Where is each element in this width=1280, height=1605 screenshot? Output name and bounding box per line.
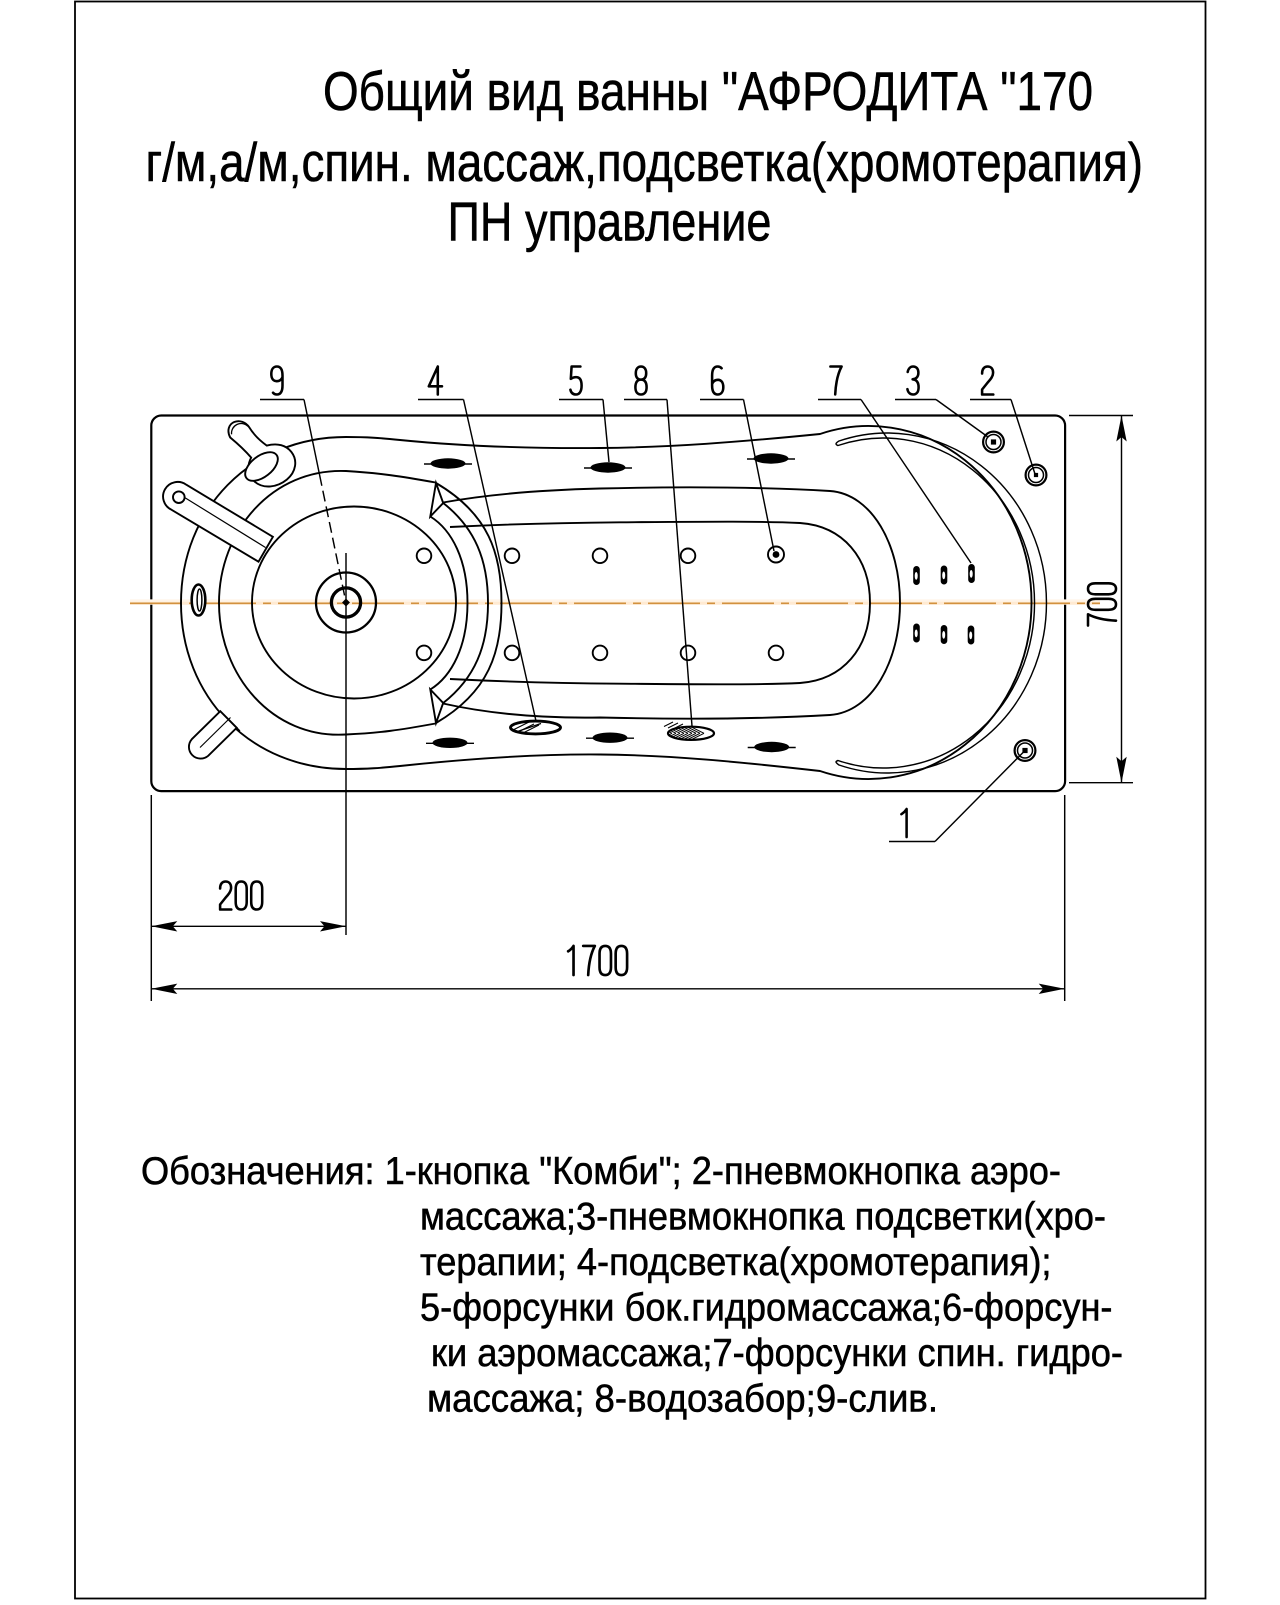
svg-text:ки аэромассажа;7-форсунки спин: ки аэромассажа;7-форсунки спин. гидро- <box>431 1332 1123 1375</box>
svg-text:5-форсунки бок.гидромассажа;6-: 5-форсунки бок.гидромассажа;6-форсун- <box>420 1287 1113 1330</box>
svg-text:Общий вид ванны "АФРОДИТА "170: Общий вид ванны "АФРОДИТА "170 <box>323 60 1093 122</box>
svg-text:массажа; 8-водозабор;9-слив.: массажа; 8-водозабор;9-слив. <box>427 1378 938 1421</box>
svg-text:ПН управление: ПН управление <box>448 191 772 253</box>
svg-text:массажа;3-пневмокнопка подсвет: массажа;3-пневмокнопка подсветки(хро- <box>420 1196 1106 1239</box>
svg-text:Обозначения: 1-кнопка "Комби";: Обозначения: 1-кнопка "Комби"; 2-пневмок… <box>141 1150 1061 1193</box>
svg-text:г/м,а/м,спин. массаж,подсветка: г/м,а/м,спин. массаж,подсветка(хромотера… <box>146 131 1144 193</box>
svg-text:терапии; 4-подсветка(хромотера: терапии; 4-подсветка(хромотерапия); <box>420 1241 1052 1284</box>
